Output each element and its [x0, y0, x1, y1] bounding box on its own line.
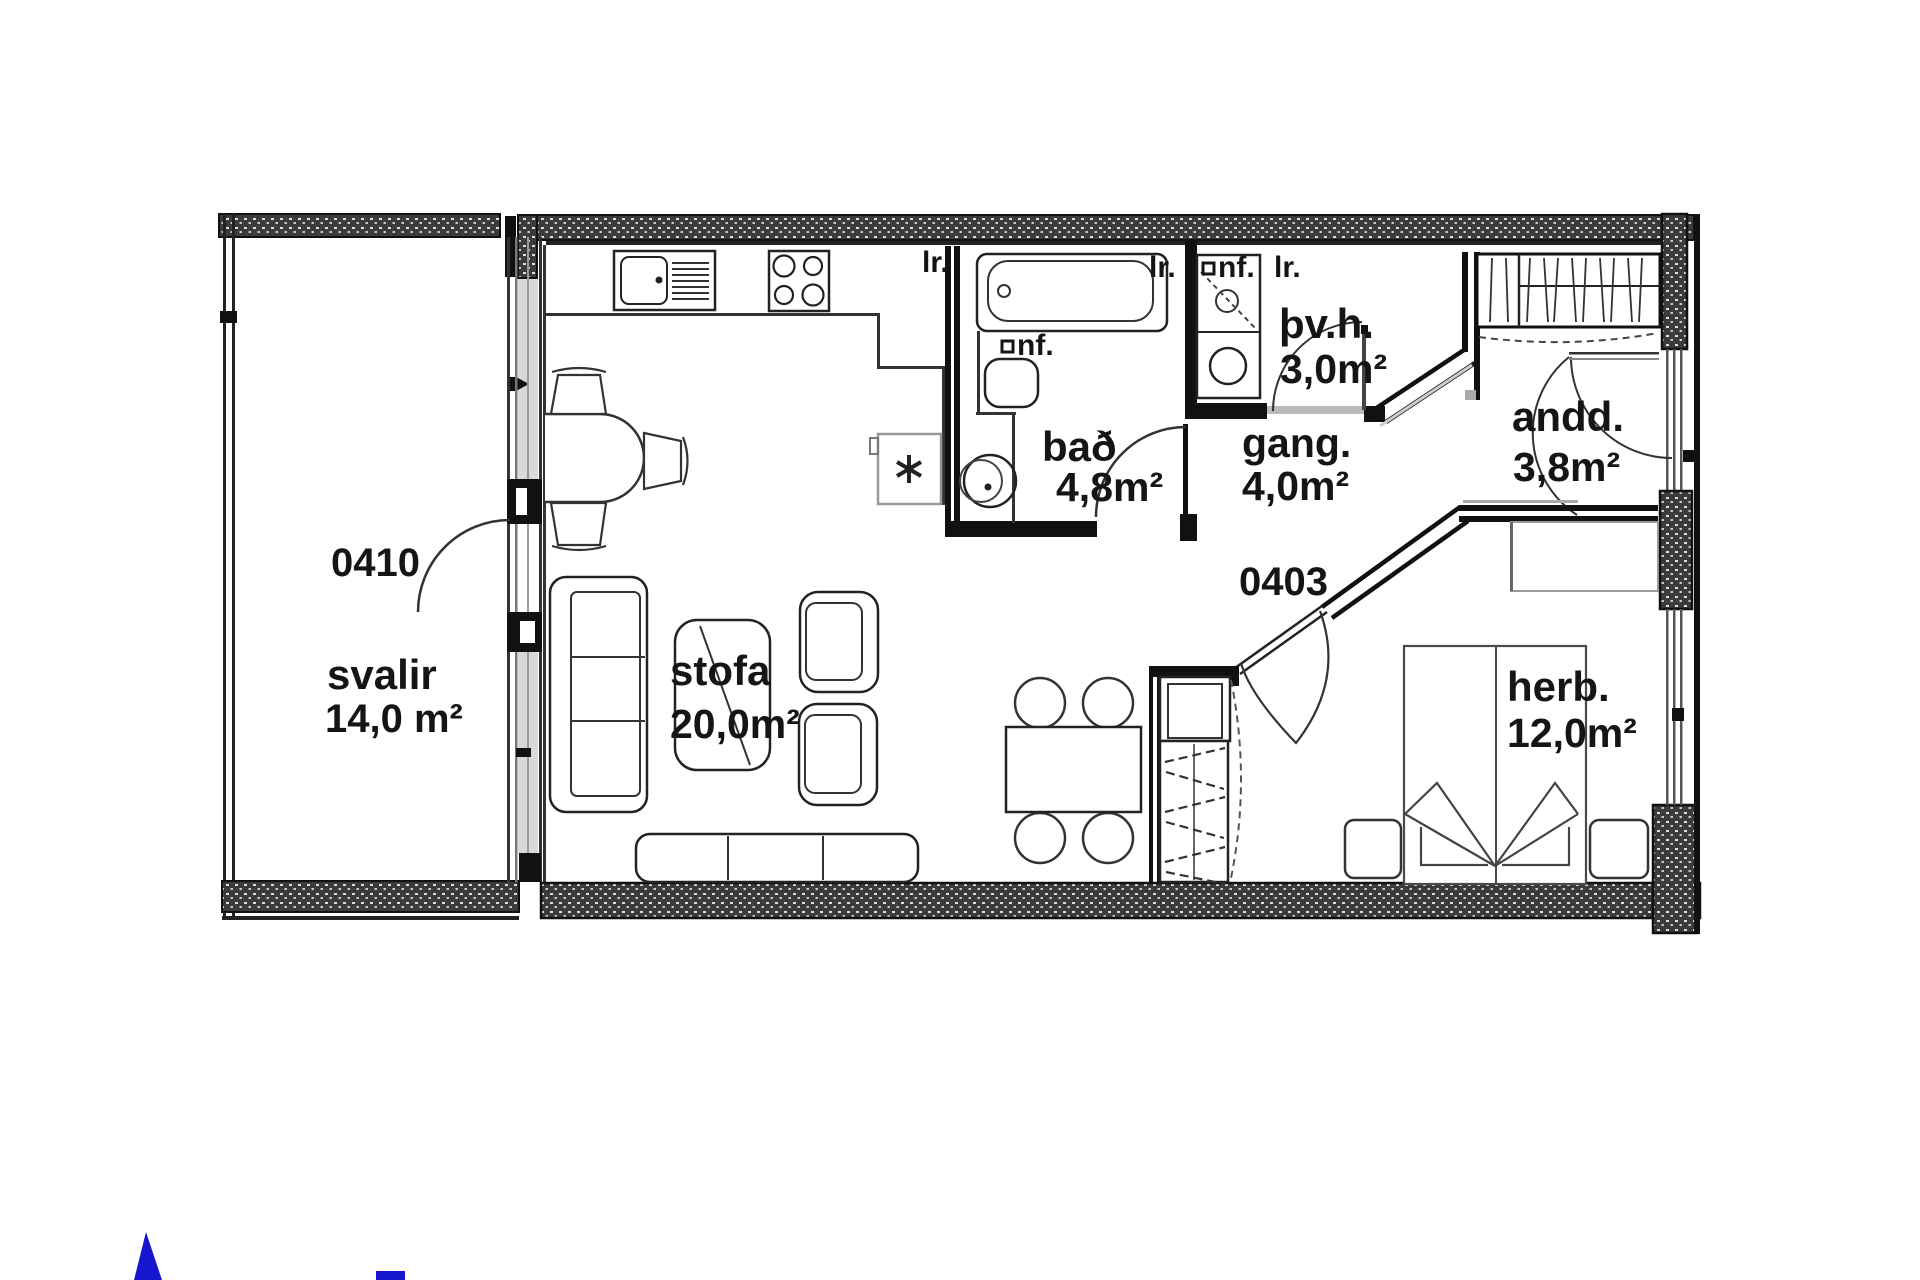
- svg-text:20,0m²: 20,0m²: [670, 701, 800, 747]
- svg-text:bað: bað: [1042, 423, 1117, 470]
- svg-text:andd.: andd.: [1512, 393, 1624, 440]
- svg-text:4,0m²: 4,0m²: [1242, 463, 1349, 509]
- svg-text:lr.: lr.: [922, 246, 949, 279]
- svg-text:lr.: lr.: [1149, 251, 1176, 284]
- svg-text:12,0m²: 12,0m²: [1507, 710, 1637, 756]
- svg-text:lr.: lr.: [1274, 251, 1301, 284]
- svg-text:3,0m²: 3,0m²: [1280, 346, 1387, 392]
- svg-text:þv.h.: þv.h.: [1279, 300, 1374, 347]
- svg-text:3,8m²: 3,8m²: [1513, 444, 1620, 490]
- svg-text:gang.: gang.: [1242, 420, 1351, 466]
- svg-text:svalir: svalir: [327, 651, 437, 698]
- svg-text:herb.: herb.: [1507, 663, 1610, 710]
- svg-text:0403: 0403: [1239, 560, 1328, 604]
- svg-text:0410: 0410: [331, 541, 420, 585]
- svg-text:stofa: stofa: [670, 647, 771, 694]
- svg-text:nf.: nf.: [1017, 329, 1054, 362]
- svg-text:14,0 m²: 14,0 m²: [325, 697, 463, 741]
- svg-text:nf.: nf.: [1218, 251, 1255, 284]
- svg-text:4,8m²: 4,8m²: [1056, 464, 1163, 510]
